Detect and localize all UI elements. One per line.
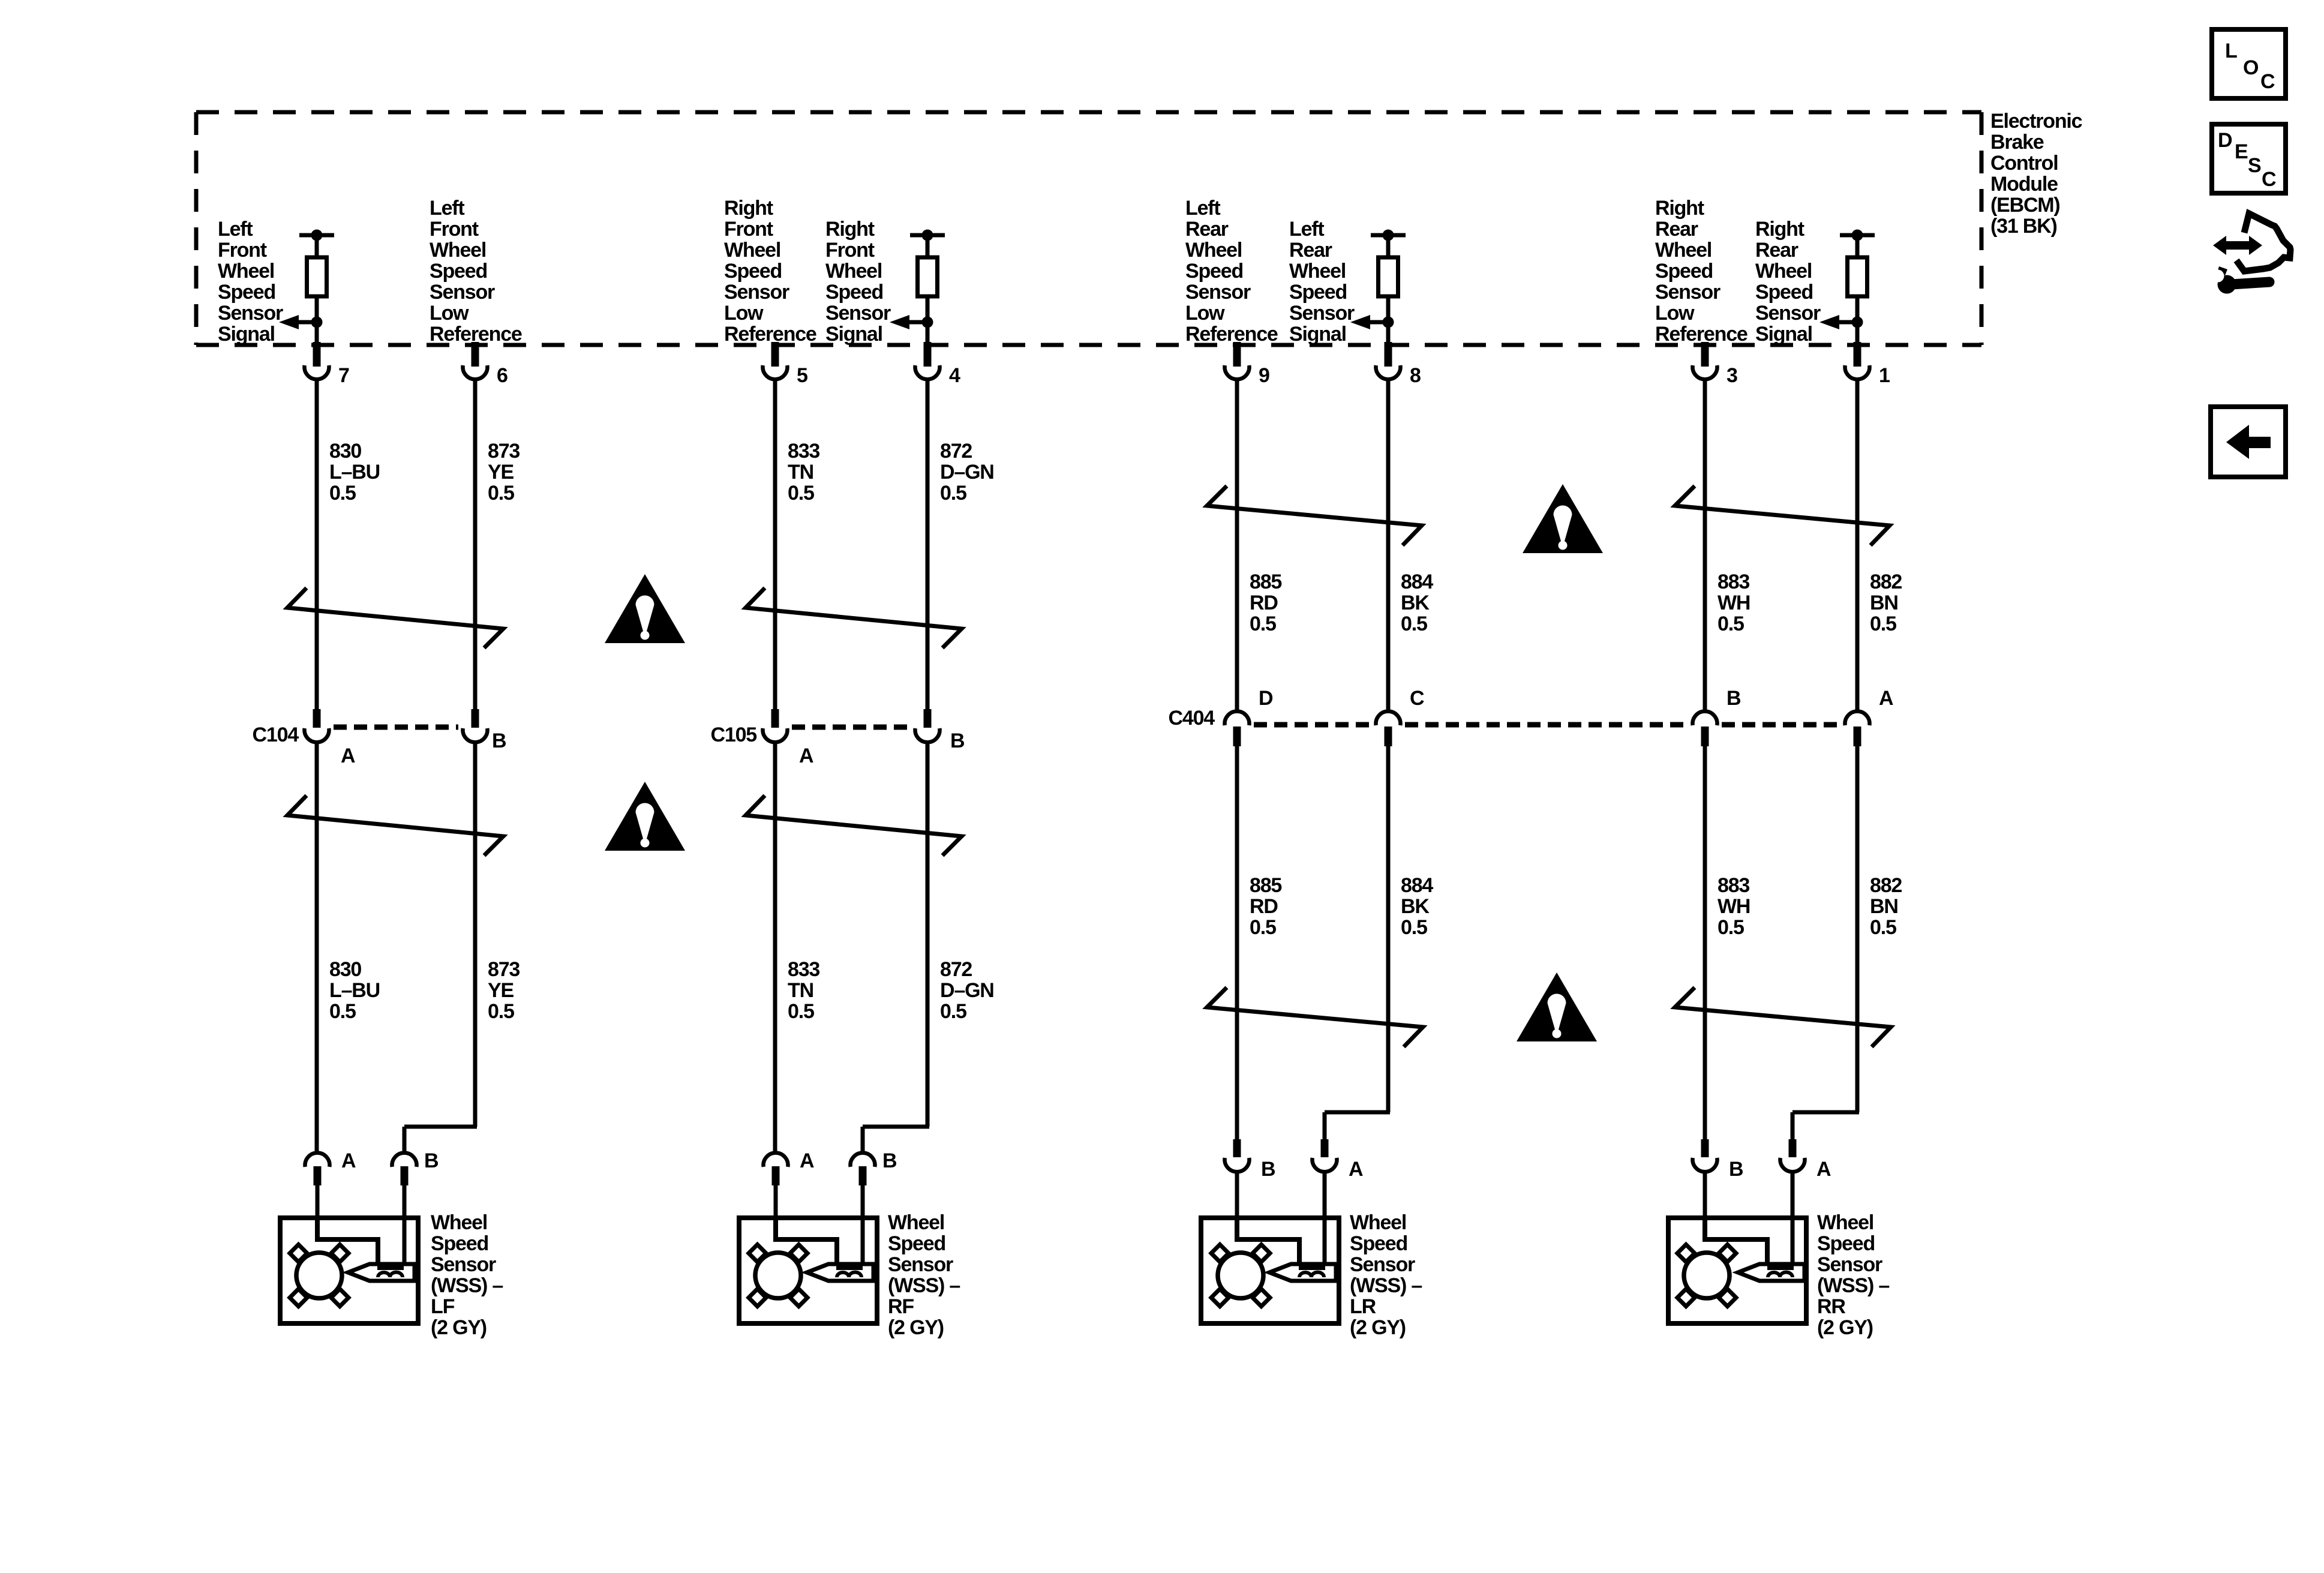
svg-text:WH: WH bbox=[1718, 895, 1750, 918]
svg-text:Speed: Speed bbox=[1655, 260, 1713, 283]
svg-text:RD: RD bbox=[1250, 895, 1278, 918]
svg-text:6: 6 bbox=[497, 364, 508, 387]
svg-text:Low: Low bbox=[1655, 302, 1695, 325]
svg-text:Speed: Speed bbox=[1350, 1232, 1407, 1255]
svg-text:TN: TN bbox=[788, 979, 813, 1002]
svg-text:Sensor: Sensor bbox=[1185, 281, 1251, 304]
svg-text:C105: C105 bbox=[711, 724, 757, 746]
svg-text:Front: Front bbox=[218, 239, 267, 262]
svg-text:Reference: Reference bbox=[724, 323, 816, 346]
svg-text:0.5: 0.5 bbox=[1401, 916, 1427, 939]
svg-text:873: 873 bbox=[488, 440, 520, 463]
svg-text:Signal: Signal bbox=[825, 323, 882, 346]
svg-text:3: 3 bbox=[1727, 364, 1737, 387]
svg-text:Signal: Signal bbox=[218, 323, 275, 346]
svg-text:Signal: Signal bbox=[1755, 323, 1812, 346]
svg-text:Wheel: Wheel bbox=[1350, 1211, 1406, 1234]
svg-text:830: 830 bbox=[329, 440, 361, 463]
svg-text:Speed: Speed bbox=[1817, 1232, 1875, 1255]
svg-text:Wheel: Wheel bbox=[1289, 260, 1346, 283]
svg-text:BN: BN bbox=[1870, 895, 1898, 918]
svg-text:Front: Front bbox=[825, 239, 875, 262]
svg-text:883: 883 bbox=[1718, 571, 1749, 593]
svg-text:Sensor: Sensor bbox=[1655, 281, 1721, 304]
svg-text:A: A bbox=[799, 745, 813, 767]
svg-text:LR: LR bbox=[1350, 1295, 1376, 1318]
svg-text:B: B bbox=[882, 1149, 897, 1172]
svg-text:885: 885 bbox=[1250, 874, 1281, 897]
svg-text:A: A bbox=[1816, 1158, 1831, 1181]
svg-text:Sensor: Sensor bbox=[1289, 302, 1355, 325]
svg-text:D–GN: D–GN bbox=[940, 979, 994, 1002]
svg-text:882: 882 bbox=[1870, 874, 1902, 897]
svg-text:Rear: Rear bbox=[1755, 239, 1798, 262]
svg-text:0.5: 0.5 bbox=[1401, 613, 1427, 635]
svg-text:BN: BN bbox=[1870, 592, 1898, 614]
svg-text:885: 885 bbox=[1250, 571, 1281, 593]
svg-text:(EBCM): (EBCM) bbox=[1990, 194, 2060, 217]
svg-text:0.5: 0.5 bbox=[940, 482, 966, 505]
svg-text:Speed: Speed bbox=[218, 281, 275, 304]
svg-text:B: B bbox=[1727, 687, 1741, 710]
svg-text:L: L bbox=[2225, 40, 2237, 62]
svg-text:Sensor: Sensor bbox=[724, 281, 789, 304]
svg-text:RF: RF bbox=[888, 1295, 914, 1318]
svg-text:Right: Right bbox=[724, 197, 773, 220]
svg-text:(WSS) –: (WSS) – bbox=[431, 1274, 503, 1297]
svg-text:Sensor: Sensor bbox=[1817, 1253, 1882, 1276]
svg-text:873: 873 bbox=[488, 958, 520, 981]
svg-text:(WSS) –: (WSS) – bbox=[888, 1274, 960, 1297]
svg-text:Signal: Signal bbox=[1289, 323, 1346, 346]
svg-text:Speed: Speed bbox=[431, 1232, 488, 1255]
svg-text:D–GN: D–GN bbox=[940, 461, 994, 484]
svg-text:0.5: 0.5 bbox=[1718, 916, 1744, 939]
svg-text:Sensor: Sensor bbox=[1350, 1253, 1415, 1276]
svg-text:833: 833 bbox=[788, 440, 819, 463]
svg-text:Sensor: Sensor bbox=[825, 302, 891, 325]
svg-text:WH: WH bbox=[1718, 592, 1750, 614]
svg-text:Electronic: Electronic bbox=[1990, 110, 2082, 133]
svg-text:C404: C404 bbox=[1169, 707, 1215, 730]
svg-text:Speed: Speed bbox=[1289, 281, 1347, 304]
svg-text:Rear: Rear bbox=[1289, 239, 1332, 262]
svg-text:Low: Low bbox=[724, 302, 764, 325]
svg-text:Left: Left bbox=[1289, 218, 1324, 241]
svg-text:(31 BK): (31 BK) bbox=[1990, 215, 2057, 238]
svg-text:Sensor: Sensor bbox=[430, 281, 495, 304]
svg-text:Wheel: Wheel bbox=[825, 260, 882, 283]
svg-text:Wheel: Wheel bbox=[1655, 239, 1712, 262]
svg-text:YE: YE bbox=[488, 979, 514, 1002]
svg-text:(2 GY): (2 GY) bbox=[1350, 1316, 1406, 1339]
svg-text:8: 8 bbox=[1410, 364, 1421, 387]
svg-text:BK: BK bbox=[1401, 895, 1430, 918]
svg-text:TN: TN bbox=[788, 461, 813, 484]
svg-text:830: 830 bbox=[329, 958, 361, 981]
svg-text:0.5: 0.5 bbox=[488, 482, 514, 505]
svg-text:Right: Right bbox=[1655, 197, 1704, 220]
svg-text:4: 4 bbox=[949, 364, 960, 387]
svg-text:(WSS) –: (WSS) – bbox=[1817, 1274, 1889, 1297]
svg-text:O: O bbox=[2243, 56, 2259, 79]
svg-text:0.5: 0.5 bbox=[329, 482, 356, 505]
svg-text:0.5: 0.5 bbox=[1870, 916, 1896, 939]
svg-text:0.5: 0.5 bbox=[1250, 916, 1276, 939]
svg-text:Front: Front bbox=[430, 218, 479, 241]
svg-text:Front: Front bbox=[724, 218, 773, 241]
svg-text:0.5: 0.5 bbox=[329, 1000, 356, 1023]
svg-text:(WSS) –: (WSS) – bbox=[1350, 1274, 1422, 1297]
svg-text:A: A bbox=[341, 745, 355, 767]
svg-text:RR: RR bbox=[1817, 1295, 1845, 1318]
svg-text:0.5: 0.5 bbox=[1250, 613, 1276, 635]
svg-text:RD: RD bbox=[1250, 592, 1278, 614]
svg-text:Wheel: Wheel bbox=[218, 260, 274, 283]
svg-text:0.5: 0.5 bbox=[488, 1000, 514, 1023]
svg-text:D: D bbox=[2218, 129, 2232, 152]
svg-text:Wheel: Wheel bbox=[1817, 1211, 1873, 1234]
svg-text:Low: Low bbox=[430, 302, 469, 325]
svg-text:Module: Module bbox=[1990, 173, 2058, 196]
svg-text:A: A bbox=[1879, 687, 1893, 710]
svg-text:Right: Right bbox=[825, 218, 875, 241]
svg-text:C104: C104 bbox=[253, 724, 299, 746]
svg-text:L–BU: L–BU bbox=[329, 979, 380, 1002]
svg-text:884: 884 bbox=[1401, 874, 1433, 897]
svg-text:C: C bbox=[1410, 687, 1424, 710]
svg-text:0.5: 0.5 bbox=[1718, 613, 1744, 635]
svg-text:Left: Left bbox=[218, 218, 253, 241]
svg-text:0.5: 0.5 bbox=[788, 482, 814, 505]
svg-text:Rear: Rear bbox=[1185, 218, 1229, 241]
svg-text:5: 5 bbox=[797, 364, 807, 387]
svg-text:884: 884 bbox=[1401, 571, 1433, 593]
svg-text:B: B bbox=[1729, 1158, 1743, 1181]
svg-text:Sensor: Sensor bbox=[888, 1253, 953, 1276]
svg-text:Wheel: Wheel bbox=[431, 1211, 487, 1234]
svg-text:S: S bbox=[2248, 154, 2261, 177]
svg-text:Sensor: Sensor bbox=[218, 302, 283, 325]
svg-text:Speed: Speed bbox=[430, 260, 487, 283]
svg-text:872: 872 bbox=[940, 958, 972, 981]
svg-text:Speed: Speed bbox=[1185, 260, 1243, 283]
svg-text:B: B bbox=[1261, 1158, 1275, 1181]
svg-text:Speed: Speed bbox=[888, 1232, 945, 1255]
svg-text:Sensor: Sensor bbox=[1755, 302, 1821, 325]
svg-text:Speed: Speed bbox=[724, 260, 782, 283]
svg-text:Brake: Brake bbox=[1990, 131, 2044, 154]
svg-text:Low: Low bbox=[1185, 302, 1225, 325]
svg-text:0.5: 0.5 bbox=[940, 1000, 966, 1023]
svg-text:0.5: 0.5 bbox=[1870, 613, 1896, 635]
svg-text:BK: BK bbox=[1401, 592, 1430, 614]
svg-text:C: C bbox=[2262, 168, 2276, 191]
svg-text:0.5: 0.5 bbox=[788, 1000, 814, 1023]
svg-text:B: B bbox=[492, 730, 506, 752]
svg-text:Rear: Rear bbox=[1655, 218, 1698, 241]
svg-text:(2 GY): (2 GY) bbox=[888, 1316, 944, 1339]
svg-text:Reference: Reference bbox=[1185, 323, 1278, 346]
svg-text:Wheel: Wheel bbox=[430, 239, 486, 262]
svg-text:872: 872 bbox=[940, 440, 972, 463]
svg-text:7: 7 bbox=[338, 364, 349, 387]
svg-text:Speed: Speed bbox=[1755, 281, 1813, 304]
svg-text:Wheel: Wheel bbox=[724, 239, 780, 262]
svg-text:(2 GY): (2 GY) bbox=[1817, 1316, 1873, 1339]
svg-text:D: D bbox=[1259, 687, 1273, 710]
svg-text:A: A bbox=[800, 1149, 814, 1172]
svg-text:883: 883 bbox=[1718, 874, 1749, 897]
svg-text:YE: YE bbox=[488, 461, 514, 484]
svg-text:9: 9 bbox=[1259, 364, 1269, 387]
svg-text:882: 882 bbox=[1870, 571, 1902, 593]
svg-text:C: C bbox=[2260, 70, 2275, 93]
svg-text:Left: Left bbox=[1185, 197, 1220, 220]
svg-text:A: A bbox=[341, 1149, 356, 1172]
svg-text:1: 1 bbox=[1879, 364, 1890, 387]
svg-text:Right: Right bbox=[1755, 218, 1804, 241]
svg-text:Control: Control bbox=[1990, 152, 2058, 175]
svg-text:B: B bbox=[424, 1149, 439, 1172]
svg-text:Left: Left bbox=[430, 197, 464, 220]
svg-text:(2 GY): (2 GY) bbox=[431, 1316, 487, 1339]
svg-text:E: E bbox=[2235, 140, 2248, 163]
svg-text:LF: LF bbox=[431, 1295, 455, 1318]
svg-text:Speed: Speed bbox=[825, 281, 883, 304]
svg-text:Wheel: Wheel bbox=[1185, 239, 1242, 262]
svg-text:Wheel: Wheel bbox=[888, 1211, 944, 1234]
svg-text:Sensor: Sensor bbox=[431, 1253, 496, 1276]
svg-text:833: 833 bbox=[788, 958, 819, 981]
svg-text:L–BU: L–BU bbox=[329, 461, 380, 484]
svg-text:A: A bbox=[1349, 1158, 1363, 1181]
svg-text:Wheel: Wheel bbox=[1755, 260, 1812, 283]
svg-text:B: B bbox=[950, 730, 965, 752]
